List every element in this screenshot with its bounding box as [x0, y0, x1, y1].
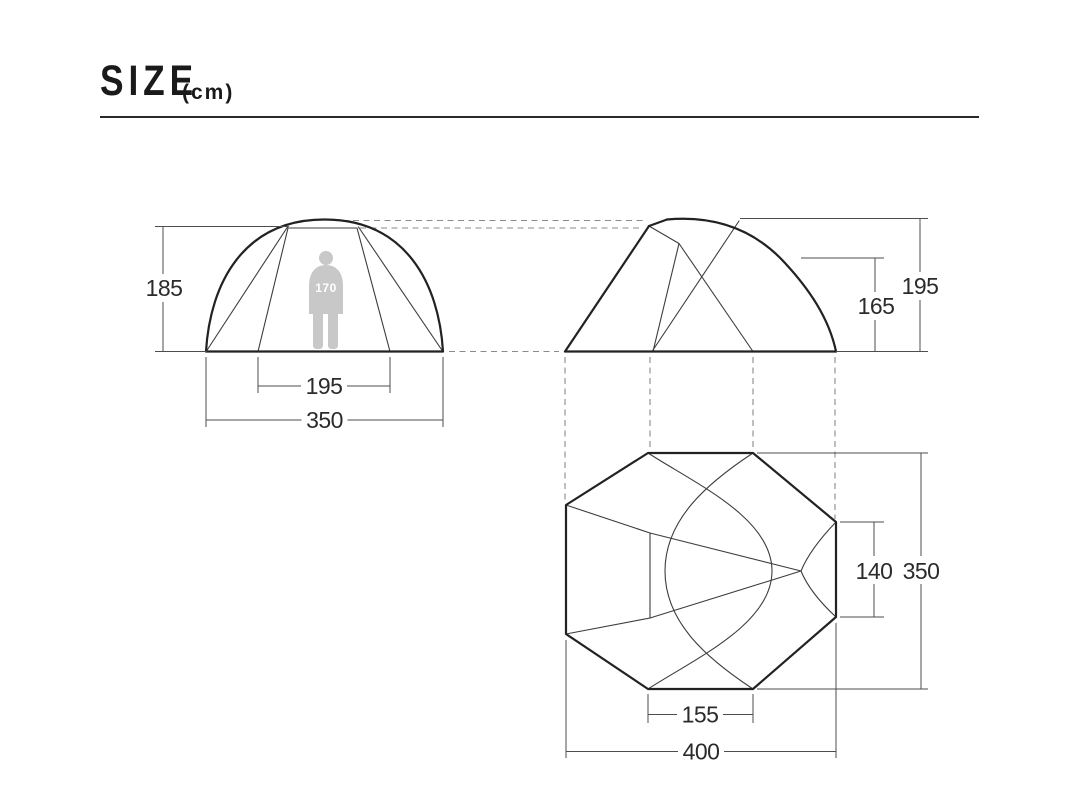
front-outer-width-label: 350 [306, 407, 343, 433]
top-converge-upper [650, 533, 801, 571]
top-footprint-outline [566, 453, 836, 689]
side-vestibule-slope [565, 226, 649, 352]
side-vestibule-tip [649, 220, 667, 227]
front-inner-width-label: 195 [306, 373, 343, 399]
size-diagram-page: SIZE (cm) 170 [0, 0, 1080, 810]
front-height-label: 185 [146, 275, 183, 301]
person-silhouette [309, 251, 343, 349]
top-pole-arc-right [648, 453, 772, 689]
top-total-width-label: 400 [683, 739, 720, 765]
side-total-height-label: 195 [902, 273, 939, 299]
tent-size-diagram: 170 185 195 350 [0, 0, 1080, 810]
top-depth-label: 350 [903, 558, 940, 584]
side-pole-c [653, 244, 679, 352]
top-door-arc-lower [801, 571, 836, 617]
top-inner-depth-label: 140 [856, 558, 893, 584]
side-pole-a [652, 221, 739, 352]
top-door-arc-upper [801, 522, 836, 571]
top-pole-arc-left [665, 453, 753, 689]
person-head [319, 251, 333, 265]
side-dome-outline [667, 219, 836, 352]
front-view: 170 185 195 350 [141, 220, 646, 435]
top-view: 140 350 155 400 [566, 453, 944, 766]
side-pole-b [679, 244, 753, 352]
side-view: 165 195 [565, 219, 943, 520]
side-vestibule-notch [649, 226, 679, 244]
person-height-label: 170 [315, 281, 337, 295]
top-inner-left-panel [566, 505, 650, 634]
side-inner-height-label: 165 [858, 293, 895, 319]
person-leg-right [328, 310, 338, 349]
top-converge-lower [650, 571, 801, 618]
top-door-width-label: 155 [682, 702, 719, 728]
person-leg-left [313, 310, 323, 349]
